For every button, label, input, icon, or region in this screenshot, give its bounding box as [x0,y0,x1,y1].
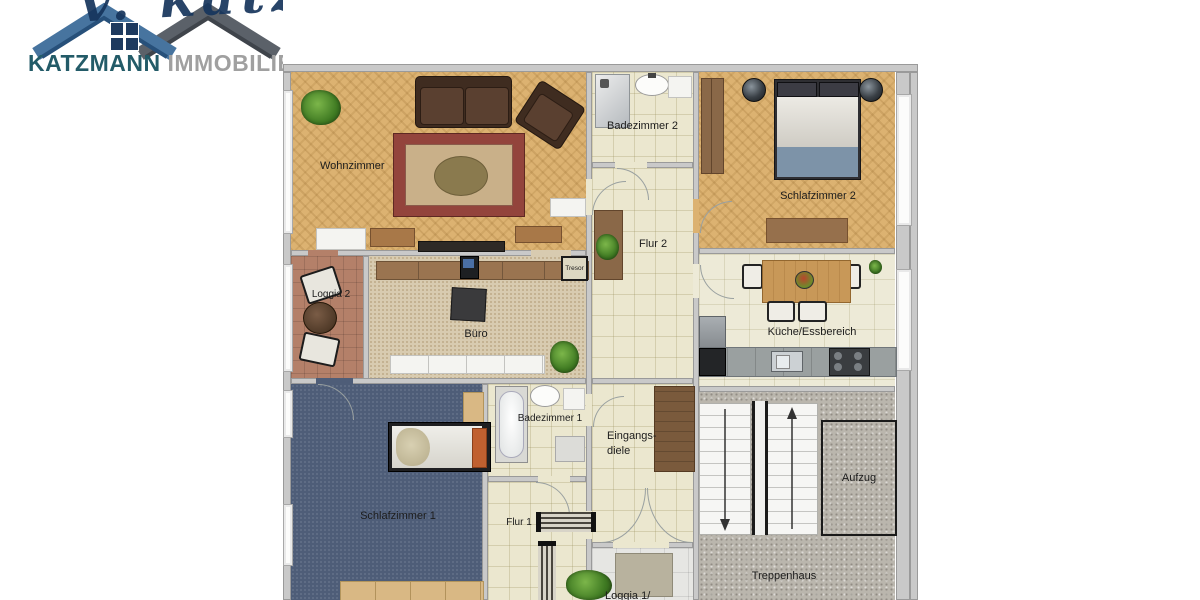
room-label-wohnzimmer: Wohnzimmer [320,160,385,172]
wall-segment [592,378,693,384]
bathtub [495,386,528,463]
oven [699,348,726,376]
shelf [555,436,585,462]
sofa [415,76,512,128]
window [283,264,293,372]
door-gap [613,542,669,548]
plant-icon [596,234,619,260]
door-gap [693,264,699,298]
company-logo: v. katzm KATZMANN IMMOBILIEN [28,0,283,78]
round-table [303,302,337,334]
room-label-loggia-1: Loggia 1/ [605,590,650,600]
window [896,269,912,371]
cabinet [463,392,484,424]
chair [742,264,763,289]
monitor [460,256,479,279]
room-label-loggia-2: Loggia 2 [297,289,365,300]
chair [767,301,795,322]
room-label-badezimmer-1: Badezimmer 1 [507,413,593,424]
tv-lowboard [418,241,505,252]
shelf [538,541,556,600]
oriental-rug [393,133,525,217]
door-gap [308,250,338,256]
sideboard [766,218,848,243]
sideboard [376,261,589,280]
plant-pot [742,78,766,102]
brand-name: KATZMANN IMMOBILIEN [28,50,283,77]
stair-divider [752,401,768,535]
staircase-up [765,403,818,535]
desk [450,287,487,322]
double-bed [774,79,861,180]
low-cabinets [390,355,545,374]
room-label-eingangsdiele-line2: diele [607,445,630,457]
room-label-buero: Büro [441,328,511,340]
tresor-label: Tresor [565,265,584,272]
window [283,390,293,438]
sideboard [370,228,415,247]
sideboard [515,226,562,243]
room-label-badezimmer-2: Badezimmer 2 [592,120,693,132]
staircase-down [699,403,751,535]
wardrobe [701,78,724,174]
brand-primary: KATZMANN [28,50,161,76]
door-gap [538,476,570,482]
window [283,90,293,234]
wall-segment [699,248,895,254]
single-bed [388,422,491,472]
stairs-down-arrow-icon [718,405,732,533]
wall-segment [283,64,918,72]
plant-icon [869,260,882,274]
plant-icon [550,341,579,373]
plant-pot [859,78,883,102]
washbasin [635,74,669,96]
floor-plan: Tresor [283,64,918,600]
radiator [316,228,366,250]
screenshot: v. katzm KATZMANN IMMOBILIEN [0,0,1200,600]
sink [771,351,803,372]
toilet [668,76,692,98]
room-label-kueche-essbereich: Küche/Essbereich [732,326,892,338]
wall-segment [699,386,895,392]
room-label-aufzug: Aufzug [842,472,876,484]
refrigerator [699,316,726,349]
wardrobe [654,386,695,472]
washbasin [530,385,560,407]
radiator [550,198,586,217]
wall-segment [363,256,369,384]
plant-icon [301,90,341,125]
door-gap [586,179,592,215]
wardrobe [340,581,484,600]
room-label-flur-1: Flur 1 [489,517,549,528]
safe-tresor: Tresor [561,256,588,281]
fruit-bowl [795,271,814,289]
toilet [563,388,585,410]
room-label-treppenhaus: Treppenhaus [694,570,874,582]
stove [829,348,870,376]
room-label-schlafzimmer-1: Schlafzimmer 1 [338,510,458,522]
room-label-flur-2: Flur 2 [639,238,667,250]
window [896,94,912,226]
stairs-up-arrow-icon [785,405,799,533]
brand-secondary: IMMOBILIEN [168,50,284,76]
room-label-schlafzimmer-2: Schlafzimmer 2 [738,190,898,202]
chair [798,301,827,322]
door-gap [316,378,353,384]
window [283,504,293,566]
door-gap [693,199,699,233]
door-gap [615,162,647,168]
elevator-aufzug: Aufzug [821,420,897,536]
room-label-eingangsdiele-line1: Eingangs- [607,430,657,442]
